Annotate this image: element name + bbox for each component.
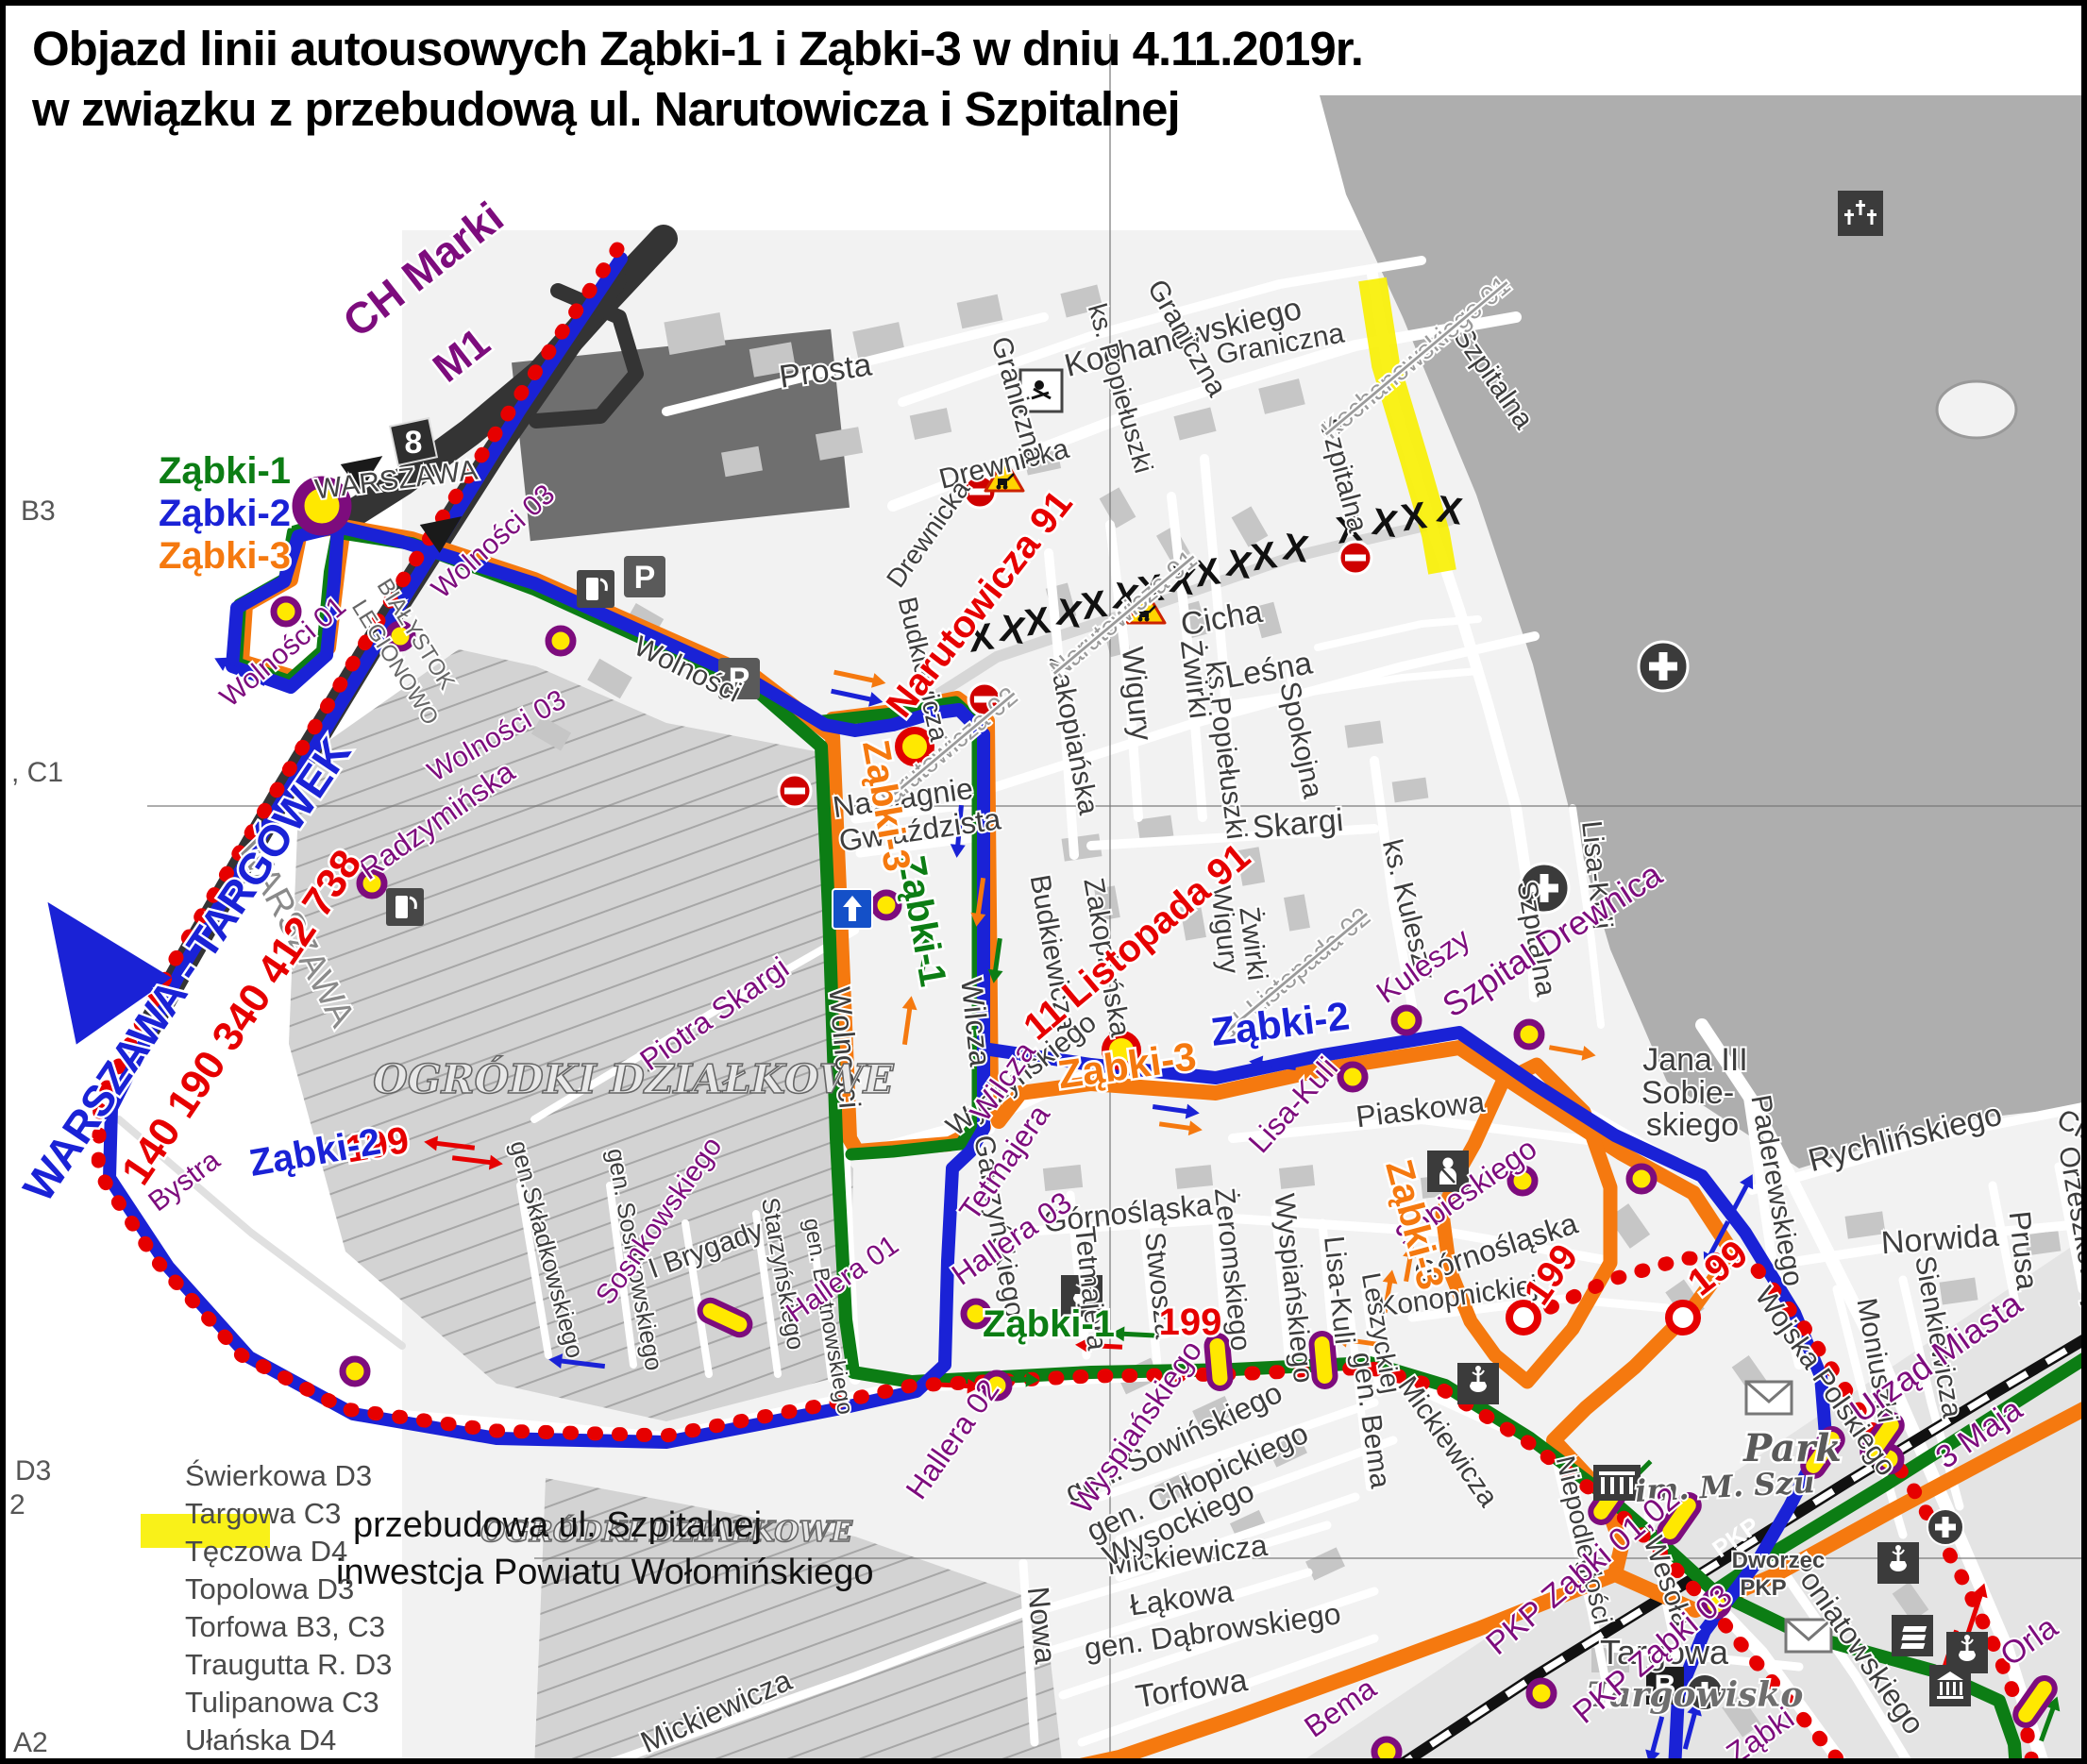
grid-edge-label: 2	[9, 1489, 25, 1520]
map-poster: Objazd linii autousowych Ząbki-1 i Ząbki…	[0, 0, 2087, 1764]
pond	[1937, 381, 2016, 438]
bus-stop	[1340, 1065, 1365, 1089]
pharmacy-icon	[1457, 1363, 1499, 1404]
grid-edge-label: A2	[13, 1727, 48, 1758]
map-canvas: XXXXXXXXXXXXXXXX PPB8 ProstaDrewnickaDre…	[6, 6, 2087, 1764]
legend-construction-line2: inwestcja Powiatu Wołomińskiego	[336, 1553, 874, 1592]
street-index-item: Tulipanowa C3	[185, 1686, 379, 1719]
street-label: Jana III	[1642, 1042, 1748, 1078]
building	[1043, 1165, 1083, 1191]
bus-stop	[874, 893, 899, 917]
pluscircle-icon	[1927, 1509, 1963, 1545]
street-index-item: Torfowa B3, C3	[185, 1610, 385, 1643]
hospitalcross-icon	[1639, 642, 1688, 691]
gas-icon	[577, 570, 614, 608]
svg-text:8: 8	[405, 425, 423, 461]
oneway-icon	[833, 889, 872, 929]
books-icon	[1892, 1615, 1933, 1656]
noentry-icon	[1339, 542, 1372, 574]
page-title: Objazd linii autousowych Ząbki-1 i Ząbki…	[32, 19, 1363, 141]
street-index-item: Świerkowa D3	[185, 1458, 372, 1492]
street-index-item: Tęczowa D4	[185, 1535, 347, 1568]
route-label: 199	[1159, 1302, 1222, 1343]
bus-stop	[343, 1359, 367, 1384]
school-icon	[1593, 1465, 1641, 1501]
route-label: Dworzec	[1732, 1548, 1826, 1573]
route-label: Ząbki-1	[983, 1303, 1115, 1345]
badge8-icon: 8	[390, 418, 437, 465]
envelope-icon	[1746, 1382, 1792, 1414]
gas-icon	[386, 888, 424, 926]
street-index-item: Topolowa D3	[185, 1572, 354, 1605]
bus-stop	[548, 629, 573, 653]
legend-route-label: Ząbki-3	[159, 535, 291, 577]
bus-stop	[1374, 1739, 1399, 1764]
legend-construction-line1: przebudowa ul. Szpitalnej	[353, 1505, 762, 1545]
grid-edge-label: B3	[21, 496, 56, 527]
legend-route-label: Ząbki-1	[159, 450, 291, 492]
title-line-1: Objazd linii autousowych Ząbki-1 i Ząbki…	[32, 19, 1363, 79]
route-label: OGRÓDKI DZIAŁKOWE	[373, 1055, 894, 1102]
bank-icon	[1929, 1665, 1971, 1706]
bus-stop	[1629, 1167, 1654, 1191]
street-index-item: Targowa C3	[185, 1497, 341, 1530]
bus-stop	[1394, 1008, 1419, 1033]
building	[1279, 1165, 1315, 1189]
street-label: skiego	[1646, 1107, 1739, 1143]
redcircle-icon	[1669, 1303, 1697, 1332]
building	[1175, 1165, 1213, 1189]
title-line-2: w związku z przebudową ul. Narutowicza i…	[32, 79, 1363, 140]
cemetery-icon	[1838, 191, 1883, 236]
bus-stop	[1517, 1022, 1541, 1047]
bus-stop	[1529, 1681, 1554, 1705]
bus-stop	[274, 599, 298, 624]
pharmacy-icon	[1877, 1542, 1919, 1584]
grid-edge-label: , C1	[11, 757, 63, 788]
legend-route-label: Ząbki-2	[159, 493, 291, 534]
route-label: PKP	[1740, 1575, 1786, 1601]
street-label: Sobie-	[1641, 1075, 1734, 1111]
svg-text:P: P	[634, 560, 656, 596]
grid-edge-label: D3	[15, 1455, 51, 1487]
street-index-item: Ułańska D4	[185, 1723, 336, 1756]
noentry-icon	[779, 775, 811, 807]
street-index-item: Traugutta R. D3	[185, 1648, 392, 1681]
redcircle-icon	[1509, 1303, 1538, 1332]
route-label: Park	[1742, 1426, 1842, 1470]
parking-icon: P	[624, 556, 665, 597]
